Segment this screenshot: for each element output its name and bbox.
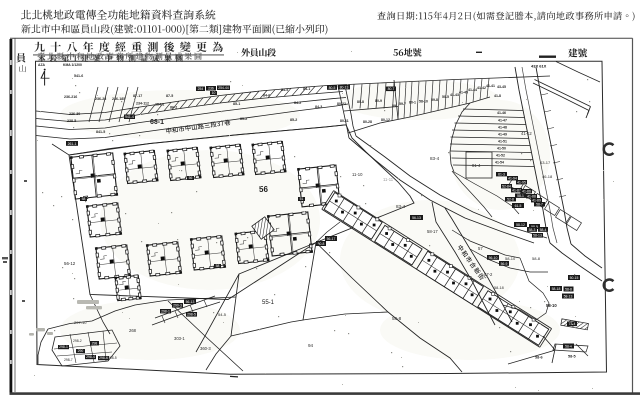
svg-text:290: 290 (78, 349, 84, 353)
svg-text:268: 268 (129, 328, 137, 333)
svg-text:236-28: 236-28 (95, 97, 106, 101)
svg-text:298-2: 298-2 (73, 339, 82, 343)
svg-text:58-1: 58-1 (517, 194, 524, 198)
svg-text:298-4: 298-4 (86, 355, 95, 359)
svg-text:297-10: 297-10 (74, 320, 87, 325)
svg-text:80-9: 80-9 (375, 99, 382, 103)
svg-text:56-10: 56-10 (489, 256, 498, 260)
svg-text:KMA 1/1200: KMA 1/1200 (63, 63, 82, 67)
svg-text:841-5: 841-5 (96, 130, 105, 134)
svg-text:41-12: 41-12 (521, 131, 532, 136)
svg-text:81-4: 81-4 (472, 163, 481, 168)
svg-text:57: 57 (478, 246, 483, 251)
svg-text:11-10: 11-10 (352, 172, 363, 177)
svg-text:11-11: 11-11 (383, 177, 394, 182)
svg-text:58-10: 58-10 (546, 303, 557, 308)
svg-text:58-8: 58-8 (565, 288, 572, 292)
svg-text:236: 236 (208, 87, 214, 91)
svg-text:85-1: 85-1 (233, 102, 240, 106)
svg-text:80-28: 80-28 (363, 120, 372, 124)
svg-text:80-12: 80-12 (381, 118, 390, 122)
svg-text:43X 61X: 43X 61X (531, 63, 547, 68)
svg-text:87-17: 87-17 (133, 94, 142, 98)
svg-text:360-3: 360-3 (200, 346, 211, 351)
svg-text:58-4: 58-4 (540, 228, 547, 232)
svg-text:298-7: 298-7 (64, 358, 73, 362)
svg-text:43-17: 43-17 (540, 160, 551, 165)
svg-text:58-3: 58-3 (529, 228, 536, 232)
svg-text:541-6: 541-6 (74, 74, 83, 78)
svg-text:41-49: 41-49 (498, 133, 507, 137)
svg-text:941-4: 941-4 (125, 115, 134, 119)
svg-text:234-112: 234-112 (136, 102, 149, 106)
svg-text:83-4: 83-4 (430, 156, 440, 161)
svg-text:41-43: 41-43 (450, 93, 459, 97)
svg-text:52-8: 52-8 (507, 197, 514, 201)
svg-text:58: 58 (216, 264, 220, 268)
svg-text:AZA: AZA (38, 63, 46, 67)
svg-text:80-5: 80-5 (329, 86, 336, 90)
svg-text:58-12: 58-12 (516, 223, 525, 227)
svg-text:56-12: 56-12 (64, 261, 76, 266)
svg-text:85-2: 85-2 (290, 118, 297, 122)
svg-text:61-3: 61-3 (498, 172, 505, 176)
svg-text:80-22: 80-22 (337, 102, 346, 106)
svg-text:254-44: 254-44 (218, 86, 229, 90)
svg-text:41-47: 41-47 (498, 119, 507, 123)
svg-text:55-1: 55-1 (262, 300, 275, 306)
svg-text:66-1: 66-1 (150, 119, 164, 126)
svg-text:85-2: 85-2 (240, 117, 247, 121)
svg-text:236-185: 236-185 (112, 97, 125, 101)
svg-text:298-5: 298-5 (187, 313, 196, 317)
svg-text:56-17: 56-17 (327, 237, 336, 241)
svg-text:41-42: 41-42 (477, 86, 486, 90)
svg-text:56: 56 (189, 176, 193, 180)
svg-text:58-18: 58-18 (552, 287, 561, 291)
svg-text:58: 58 (82, 197, 86, 201)
svg-text:86-2: 86-2 (170, 106, 177, 110)
svg-text:56-13: 56-13 (412, 216, 421, 220)
svg-text:58-17: 58-17 (427, 229, 438, 234)
svg-text:298-5: 298-5 (108, 356, 117, 360)
svg-text:303-1: 303-1 (174, 336, 185, 341)
svg-text:41-86: 41-86 (522, 189, 531, 193)
svg-text:58-10: 58-10 (419, 100, 428, 104)
svg-text:59-7: 59-7 (399, 102, 406, 106)
svg-text:51: 51 (300, 197, 304, 201)
svg-text:10: 10 (212, 91, 216, 95)
svg-text:41-8: 41-8 (494, 94, 501, 98)
svg-text:58-18: 58-18 (494, 286, 504, 290)
svg-text:236-216: 236-216 (64, 95, 77, 99)
svg-text:41-87: 41-87 (512, 188, 521, 192)
svg-text:298: 298 (92, 341, 98, 345)
svg-text:41-54: 41-54 (495, 161, 504, 165)
svg-text:298-1: 298-1 (59, 345, 68, 349)
svg-text:298-6: 298-6 (99, 356, 108, 360)
svg-text:52-84: 52-84 (502, 184, 511, 188)
svg-text:41-50: 41-50 (497, 147, 506, 151)
svg-text:41-45: 41-45 (459, 91, 468, 95)
svg-text:58-8: 58-8 (532, 256, 541, 261)
svg-text:41-95: 41-95 (517, 180, 526, 184)
svg-text:238-5: 238-5 (67, 119, 76, 123)
svg-text:84-6: 84-6 (263, 94, 270, 98)
svg-text:56-9: 56-9 (501, 262, 508, 266)
svg-text:80-13: 80-13 (340, 85, 349, 89)
svg-text:261-1: 261-1 (68, 142, 77, 146)
svg-text:80-8: 80-8 (357, 100, 364, 104)
svg-text:290-3: 290-3 (173, 304, 182, 308)
svg-text:58-6: 58-6 (535, 356, 543, 360)
svg-text:61-5: 61-5 (515, 204, 522, 208)
svg-text:50-5: 50-5 (442, 95, 449, 99)
svg-text:80-11: 80-11 (340, 119, 349, 123)
svg-text:236-30: 236-30 (69, 112, 80, 116)
svg-text:298-1: 298-1 (161, 309, 170, 313)
svg-text:41-52: 41-52 (496, 154, 505, 158)
svg-text:41-48: 41-48 (498, 126, 507, 130)
svg-text:41-51: 41-51 (498, 140, 507, 144)
svg-text:41-44: 41-44 (468, 88, 477, 92)
svg-text:46-18: 46-18 (542, 174, 553, 179)
svg-text:54-5: 54-5 (218, 312, 227, 317)
svg-text:50-15: 50-15 (570, 276, 579, 280)
svg-text:84-3: 84-3 (315, 105, 322, 109)
svg-text:57-2: 57-2 (484, 272, 493, 277)
svg-text:84-1: 84-1 (303, 87, 310, 91)
svg-text:41-41: 41-41 (486, 84, 495, 88)
svg-text:58-7: 58-7 (536, 202, 543, 206)
svg-text:87-5: 87-5 (166, 94, 173, 98)
svg-text:60-1: 60-1 (409, 101, 416, 105)
svg-text:58-13: 58-13 (564, 295, 573, 299)
svg-text:43-45: 43-45 (497, 85, 506, 89)
svg-text:41-46: 41-46 (497, 111, 506, 115)
svg-text:41-94: 41-94 (508, 176, 517, 180)
svg-text:254-1: 254-1 (155, 103, 164, 107)
svg-text:58-5: 58-5 (568, 355, 576, 359)
svg-text:59: 59 (392, 104, 396, 108)
svg-text:59-8: 59-8 (431, 98, 438, 102)
svg-text:58-10: 58-10 (505, 256, 516, 261)
svg-text:56-13: 56-13 (186, 300, 195, 304)
svg-text:84-2: 84-2 (294, 101, 301, 105)
svg-text:83-4: 83-4 (396, 204, 406, 209)
svg-text:80-7: 80-7 (388, 87, 395, 91)
svg-text:58-13: 58-13 (533, 234, 542, 238)
svg-text:94: 94 (308, 343, 314, 348)
svg-text:254: 254 (198, 87, 204, 91)
svg-text:84-5: 84-5 (281, 88, 288, 92)
